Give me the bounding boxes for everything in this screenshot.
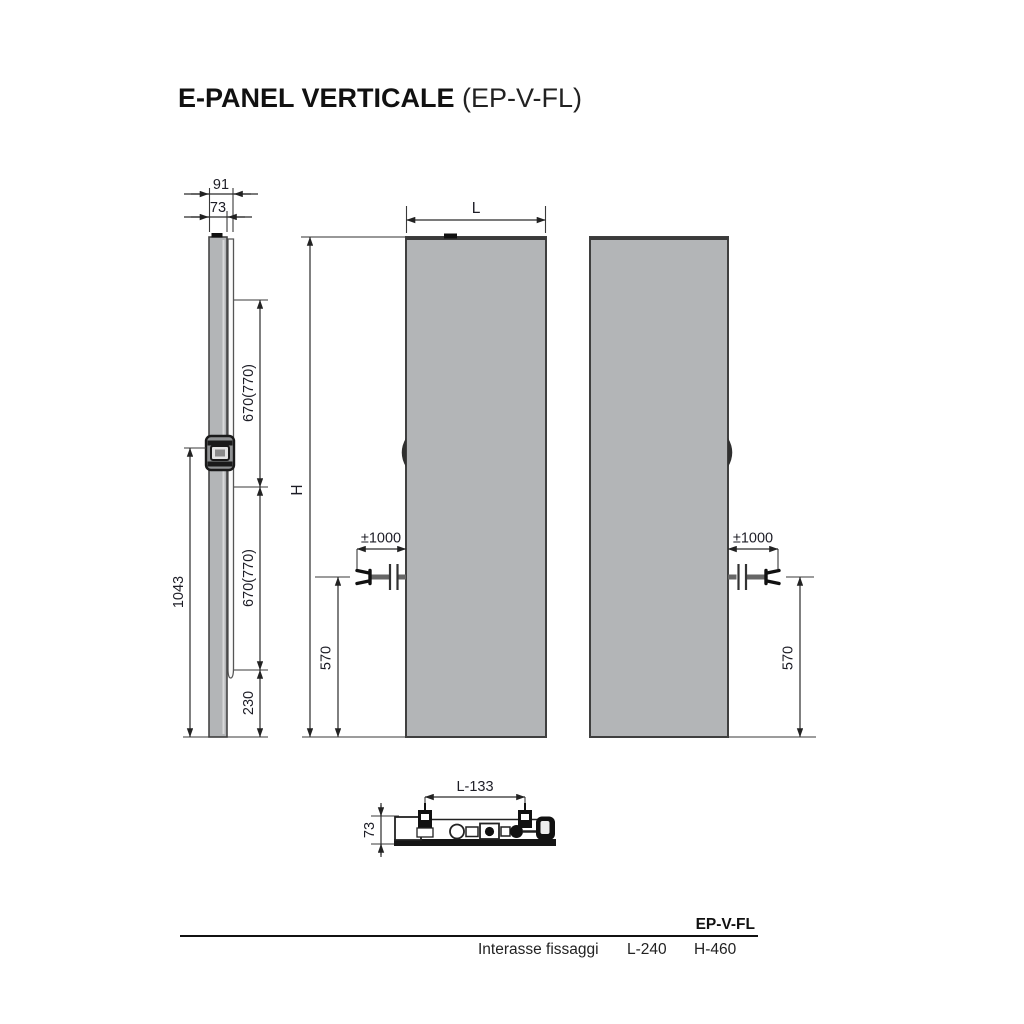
dim-1043-label: 1043 — [171, 576, 187, 608]
fixing-bracket — [518, 803, 532, 828]
dim-cable-height-right: 570 — [781, 577, 815, 737]
dim-73-section-label: 73 — [362, 822, 378, 838]
air-vent-mark — [444, 234, 457, 239]
technical-drawing: E-PANEL VERTICALE (EP-V-FL) 91 — [0, 0, 1024, 1024]
title-text: E-PANEL VERTICALE — [178, 83, 455, 113]
l-spacing-value: L-240 — [627, 941, 667, 958]
dim-lower-span: 670(770) — [241, 487, 260, 670]
dim-cable-length-right: ±1000 — [728, 531, 778, 570]
dim-fixing-span: L-133 — [425, 779, 525, 812]
dim-depth-panel: 73 — [184, 200, 252, 232]
dim-570-right-label: 570 — [781, 646, 797, 670]
dim-bottom-offset: 230 — [241, 670, 260, 737]
dim-670-upper-label: 670(770) — [241, 364, 257, 422]
connector-block — [501, 827, 510, 836]
dim-73-label: 73 — [210, 200, 226, 216]
spec-table: EP-V-FL Interasse fissaggi L-240 H-460 — [180, 916, 758, 958]
title-code-text: (EP-V-FL) — [462, 83, 582, 113]
dim-cable-height-left: 570 — [315, 577, 350, 737]
dim-bracket-to-floor: 1043 — [171, 448, 190, 737]
dim-91-label: 91 — [213, 177, 229, 193]
front-view: L H ±1000 570 — [289, 200, 546, 737]
profile-right-cap-slot — [541, 821, 550, 834]
control-knob-side — [402, 438, 406, 467]
valve-core — [485, 827, 494, 836]
plug-fork-icon — [766, 571, 779, 584]
power-cable-right — [728, 564, 779, 590]
dim-1000-left-label: ±1000 — [361, 531, 401, 547]
power-cable-left — [357, 564, 406, 590]
spec-sheet-page: E-PANEL VERTICALE (EP-V-FL) 91 — [0, 0, 1024, 1024]
row-label: Interasse fissaggi — [478, 941, 599, 958]
dim-height: H — [289, 237, 310, 737]
side-view: 91 73 670(770) 670(770) 230 1043 — [171, 177, 268, 737]
dim-cable-length-left: ±1000 — [357, 531, 406, 570]
dim-670-lower-label: 670(770) — [241, 549, 257, 607]
wall-bracket — [206, 436, 234, 470]
h-spacing-value: H-460 — [694, 941, 737, 958]
plug-fork-icon — [357, 571, 370, 584]
dim-width: L — [407, 200, 546, 233]
page-title: E-PANEL VERTICALE (EP-V-FL) — [178, 83, 582, 113]
dim-upper-span: 670(770) — [241, 300, 260, 487]
dim-section-depth: 73 — [362, 803, 399, 857]
bottom-profile — [394, 803, 556, 846]
front-panel-body — [406, 237, 546, 737]
valve-circle — [450, 825, 464, 839]
bottom-view: L-133 73 — [362, 779, 556, 857]
control-knob-side — [728, 438, 732, 467]
back-panel-body — [590, 237, 728, 737]
dim-L133-label: L-133 — [456, 779, 493, 795]
dim-1000-right-label: ±1000 — [733, 531, 773, 547]
dim-H-label: H — [289, 484, 306, 495]
fixing-bracket — [417, 803, 433, 837]
dim-230-label: 230 — [241, 691, 257, 715]
connector-block — [466, 827, 478, 837]
back-view: ±1000 570 — [590, 237, 816, 737]
dim-L-label: L — [472, 200, 481, 217]
dim-570-left-label: 570 — [319, 646, 335, 670]
model-code: EP-V-FL — [696, 916, 755, 933]
side-top-cap — [212, 233, 223, 238]
